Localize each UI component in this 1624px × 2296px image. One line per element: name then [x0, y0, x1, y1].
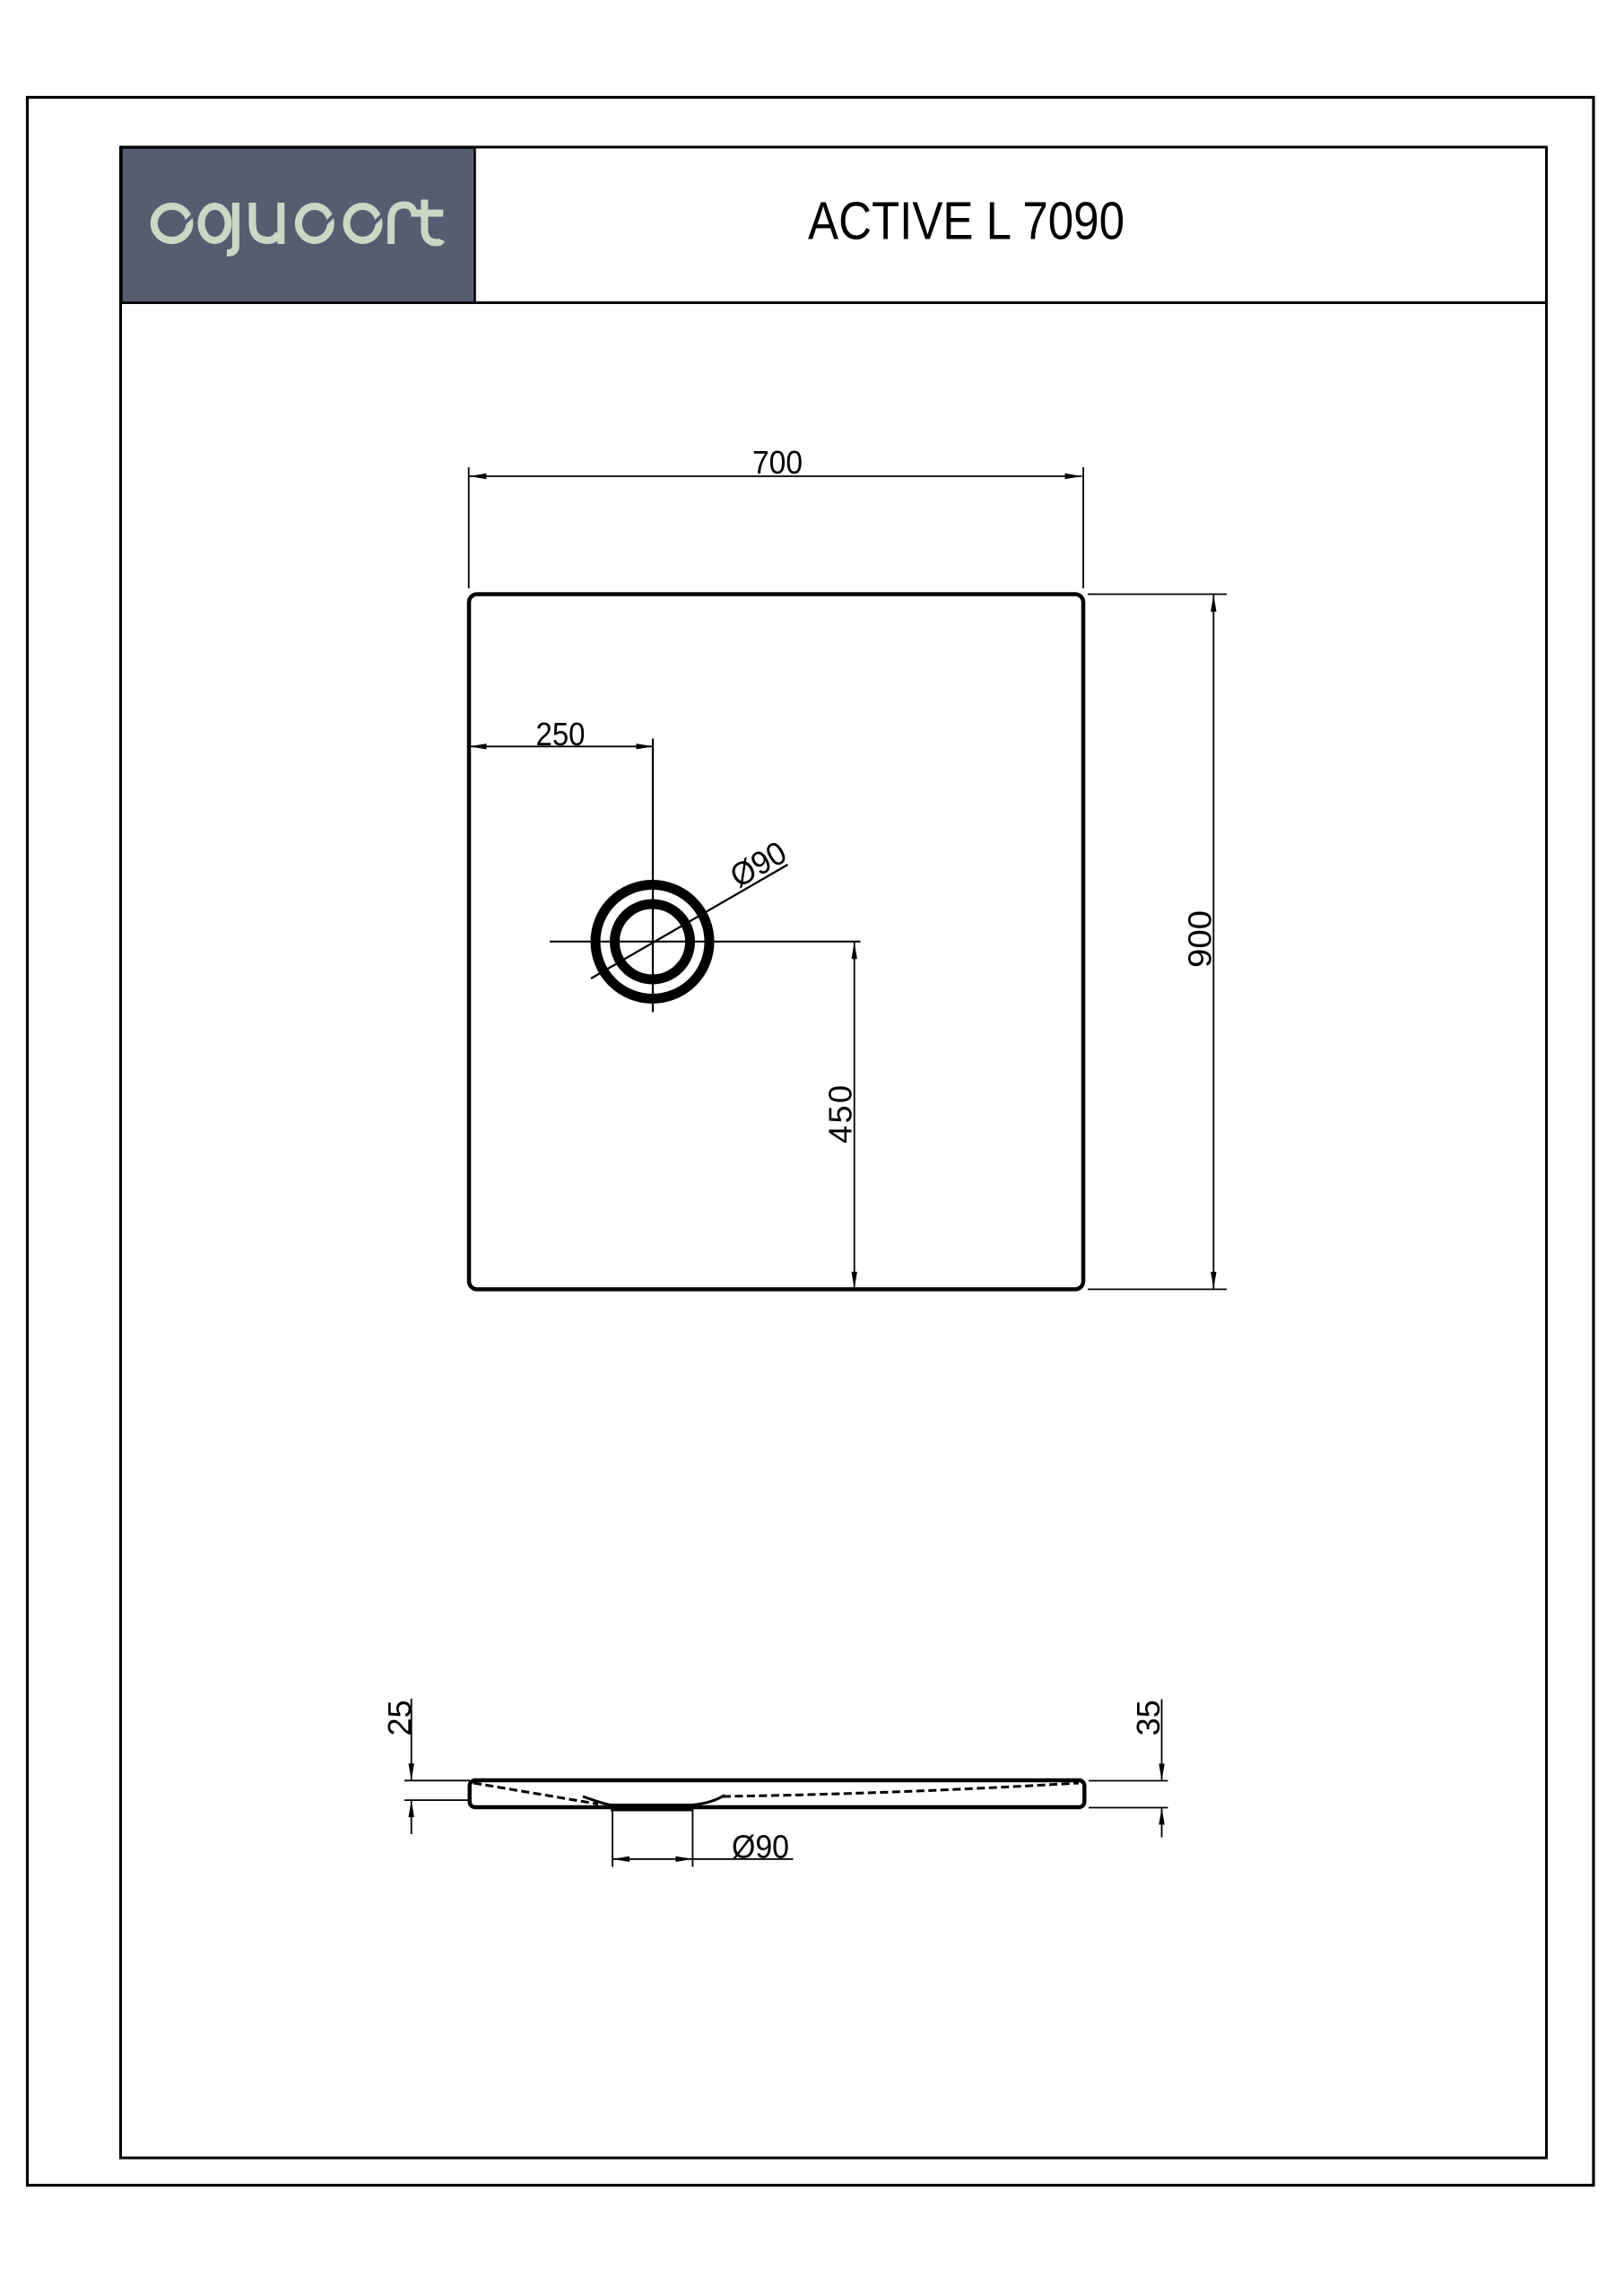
svg-text:450: 450: [822, 1085, 859, 1144]
svg-text:700: 700: [752, 444, 803, 481]
svg-text:ACTIVE L 7090: ACTIVE L 7090: [808, 192, 1125, 251]
svg-text:Ø90: Ø90: [732, 1829, 789, 1865]
svg-text:35: 35: [1130, 1700, 1167, 1735]
svg-text:900: 900: [1182, 910, 1219, 968]
svg-text:25: 25: [381, 1700, 418, 1735]
svg-text:250: 250: [536, 716, 586, 752]
